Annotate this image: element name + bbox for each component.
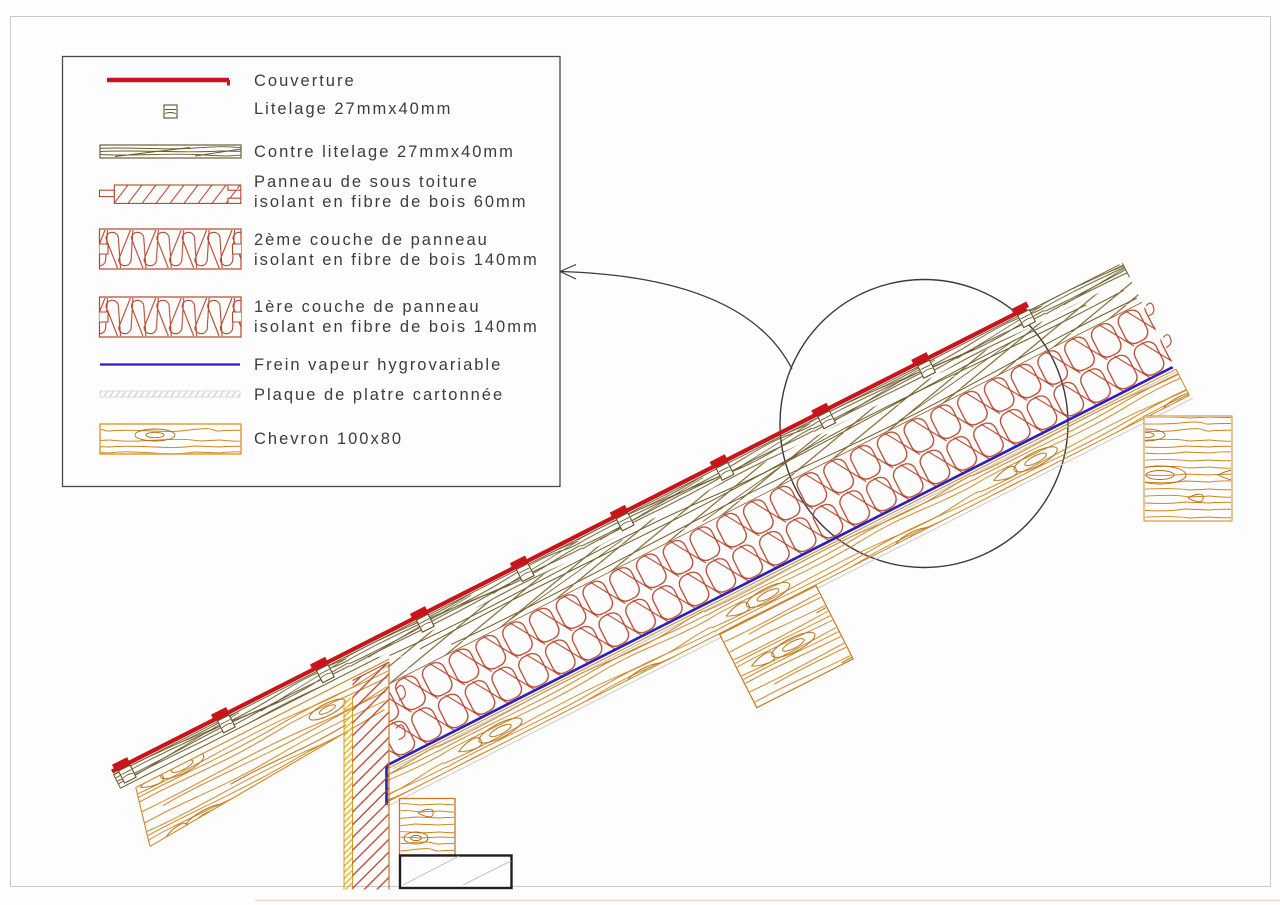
svg-text:isolant en fibre de bois 140mm: isolant en fibre de bois 140mm bbox=[254, 318, 539, 336]
svg-text:Litelage 27mmx40mm: Litelage 27mmx40mm bbox=[254, 100, 452, 118]
svg-text:Frein vapeur hygrovariable: Frein vapeur hygrovariable bbox=[254, 356, 502, 374]
svg-text:Chevron 100x80: Chevron 100x80 bbox=[254, 430, 403, 448]
svg-text:1ère couche de panneau: 1ère couche de panneau bbox=[254, 298, 481, 316]
svg-text:Contre litelage 27mmx40mm: Contre litelage 27mmx40mm bbox=[254, 143, 515, 161]
svg-text:isolant en fibre de bois 140mm: isolant en fibre de bois 140mm bbox=[254, 251, 539, 269]
svg-text:isolant en fibre de bois 60mm: isolant en fibre de bois 60mm bbox=[254, 193, 528, 211]
svg-text:Panneau de sous toiture: Panneau de sous toiture bbox=[254, 173, 479, 191]
svg-text:Couverture: Couverture bbox=[254, 72, 356, 90]
svg-text:2ème couche de panneau: 2ème couche de panneau bbox=[254, 231, 489, 249]
svg-text:Plaque de platre cartonnée: Plaque de platre cartonnée bbox=[254, 386, 504, 404]
